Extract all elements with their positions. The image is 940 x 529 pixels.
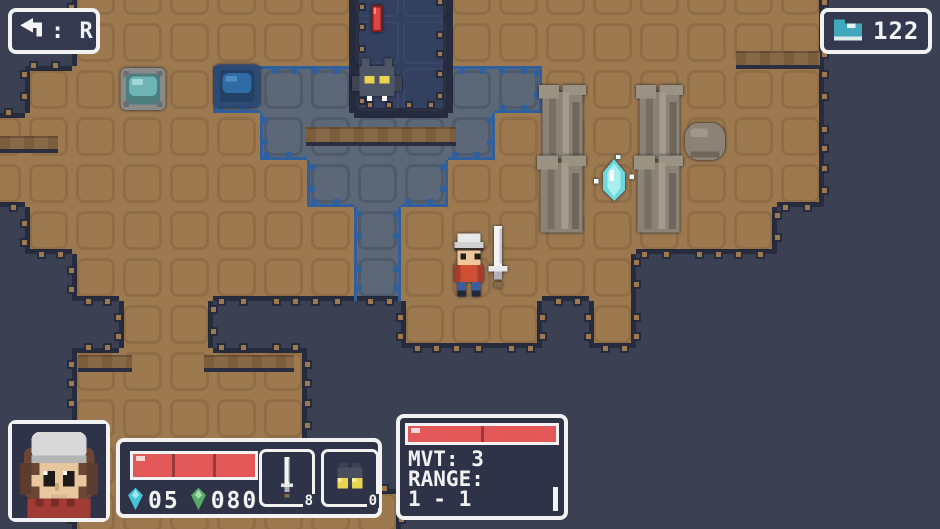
tile-floor[interactable]: [589, 254, 636, 301]
map-edge-tooth: [103, 297, 112, 306]
map-edge-tooth: [573, 297, 582, 306]
tile-floor[interactable]: [166, 301, 213, 348]
map-edge-tooth: [554, 297, 563, 306]
tile-floor[interactable]: [119, 160, 166, 207]
map-edge-tooth: [67, 360, 76, 369]
tile-floor[interactable]: [119, 301, 166, 348]
tile-floor[interactable]: [72, 66, 119, 113]
map-edge-tooth: [632, 258, 641, 267]
gem-green-icon: [191, 488, 206, 514]
tile-floor[interactable]: [260, 19, 307, 66]
range-edge-dot: [534, 70, 540, 76]
range-edge-dot: [393, 266, 399, 272]
slot-binoculars-badge: 0: [367, 494, 379, 508]
map-edge-tooth: [67, 285, 76, 294]
range-edge-dot: [405, 199, 411, 205]
undo-hint-box[interactable]: : R: [8, 8, 100, 54]
map-edge-tooth: [20, 238, 29, 247]
map-edge-tooth: [303, 399, 312, 408]
map-edge-tooth: [291, 343, 300, 352]
tile-floor[interactable]: [448, 19, 495, 66]
map-edge-tooth: [103, 343, 112, 352]
range-edge-dot: [521, 68, 527, 74]
tile-floor[interactable]: [213, 113, 260, 160]
map-edge-tooth: [756, 250, 765, 259]
tile-floor[interactable]: [401, 207, 448, 254]
tile-enemy-range[interactable]: [354, 254, 401, 301]
tile-floor[interactable]: [589, 0, 636, 19]
map-edge-tooth: [291, 297, 300, 306]
tile-floor[interactable]: [72, 113, 119, 160]
map-edge-tooth: [20, 70, 29, 79]
tile-floor[interactable]: [730, 160, 777, 207]
range-edge-dot: [393, 233, 399, 239]
game-stage: : R 122: [0, 0, 940, 529]
slot-sword-badge: 8: [303, 494, 315, 508]
map-edge-tooth: [820, 92, 829, 101]
range-edge-dot: [460, 68, 466, 74]
tile-floor[interactable]: [542, 254, 589, 301]
range-edge-dot: [440, 186, 446, 192]
range-edge-dot: [333, 68, 339, 74]
range-edge-dot: [356, 285, 362, 291]
pit-edge-tooth: [427, 101, 435, 109]
map-edge-tooth: [84, 297, 93, 306]
range-edge-dot: [499, 68, 505, 74]
tile-floor[interactable]: [777, 160, 824, 207]
map-edge-tooth: [29, 61, 38, 70]
boulder-sprite: [682, 115, 728, 165]
tile-floor[interactable]: [401, 301, 448, 348]
tile-enemy-range[interactable]: [354, 160, 401, 207]
map-edge-tooth: [640, 250, 649, 259]
tile-floor[interactable]: [636, 19, 683, 66]
tile-floor[interactable]: [166, 254, 213, 301]
tile-floor[interactable]: [119, 207, 166, 254]
tile-floor[interactable]: [730, 0, 777, 19]
tile-floor[interactable]: [307, 254, 354, 301]
map-edge-tooth: [507, 344, 516, 353]
map-edge-tooth: [432, 344, 441, 353]
pillar-sprite: [634, 154, 683, 234]
tile-floor[interactable]: [119, 113, 166, 160]
tile-floor[interactable]: [495, 301, 542, 348]
hp-segment: [484, 426, 557, 442]
map-edge-tooth: [333, 297, 342, 306]
pit-edge-tooth: [436, 31, 444, 39]
map-edge-tooth: [773, 211, 782, 220]
range-edge-dot: [521, 105, 527, 111]
cliff-ledge: [306, 127, 456, 146]
tile-floor[interactable]: [25, 160, 72, 207]
map-edge-tooth: [820, 144, 829, 153]
map-edge-tooth: [526, 344, 535, 353]
tile-floor[interactable]: [166, 207, 213, 254]
pit-edge-tooth: [358, 45, 366, 53]
steps-counter-box: 122: [820, 8, 932, 54]
map-edge-tooth: [67, 266, 76, 275]
tile-floor[interactable]: [166, 160, 213, 207]
tile-floor[interactable]: [119, 395, 166, 442]
range-edge-dot: [427, 199, 433, 205]
tile-floor[interactable]: [589, 301, 636, 348]
hp-bar-shine: [136, 456, 145, 461]
tile-enemy-range[interactable]: [448, 66, 495, 113]
enemy-range-label: RANGE:: [408, 469, 484, 489]
tile-floor[interactable]: [730, 113, 777, 160]
enemy-hp-bar: [405, 423, 559, 445]
tile-floor[interactable]: [307, 19, 354, 66]
range-edge-dot: [309, 186, 315, 192]
tile-floor[interactable]: [448, 160, 495, 207]
hero-portrait: [12, 424, 106, 518]
map-edge-tooth: [820, 164, 829, 173]
tile-floor[interactable]: [119, 254, 166, 301]
range-edge-dot: [479, 68, 485, 74]
range-edge-dot: [291, 68, 297, 74]
pit-edge-tooth: [405, 101, 413, 109]
tile-floor[interactable]: [213, 395, 260, 442]
range-edge-dot: [311, 68, 317, 74]
tile-floor[interactable]: [683, 19, 730, 66]
map-edge-tooth: [632, 313, 641, 322]
tile-floor[interactable]: [119, 19, 166, 66]
pit-edge-tooth: [436, 0, 444, 6]
enemy-range-value: 1 - 1: [408, 489, 484, 509]
tile-floor[interactable]: [25, 207, 72, 254]
tile-floor[interactable]: [72, 254, 119, 301]
map-edge-tooth: [695, 250, 704, 259]
tile-floor[interactable]: [119, 0, 166, 19]
tile-floor[interactable]: [213, 0, 260, 19]
map-edge-tooth: [474, 344, 483, 353]
tile-floor[interactable]: [495, 19, 542, 66]
tile-floor[interactable]: [542, 0, 589, 19]
range-edge-dot: [499, 105, 505, 111]
pillar-sprite: [537, 154, 586, 234]
tile-floor[interactable]: [495, 0, 542, 19]
map-edge-tooth: [820, 0, 829, 7]
map-edge-tooth: [217, 297, 226, 306]
range-edge-dot: [393, 211, 399, 217]
tile-floor[interactable]: [495, 160, 542, 207]
map-edge-tooth: [632, 280, 641, 289]
tile-floor[interactable]: [166, 19, 213, 66]
tile-floor[interactable]: [683, 207, 730, 254]
tile-floor[interactable]: [72, 160, 119, 207]
range-edge-dot: [356, 233, 362, 239]
map-edge-tooth: [396, 332, 405, 341]
map-edge-tooth: [239, 297, 248, 306]
gem-cyan-count: 05: [148, 488, 180, 514]
tile-floor[interactable]: [589, 19, 636, 66]
tile-floor[interactable]: [213, 207, 260, 254]
tile-floor[interactable]: [683, 0, 730, 19]
map-edge-tooth: [303, 379, 312, 388]
range-edge-dot: [262, 117, 268, 123]
pit-edge-tooth: [358, 23, 366, 31]
map-edge-tooth: [209, 305, 218, 314]
undo-arrow-icon: [20, 18, 46, 44]
tile-floor[interactable]: [542, 19, 589, 66]
map-edge-tooth: [217, 343, 226, 352]
tile-floor[interactable]: [401, 254, 448, 301]
range-edge-dot: [487, 117, 493, 123]
tile-floor[interactable]: [730, 66, 777, 113]
map-edge-tooth: [67, 379, 76, 388]
map-edge-tooth: [9, 203, 18, 212]
crystal-sprite[interactable]: [592, 152, 636, 206]
tile-floor[interactable]: [260, 160, 307, 207]
inventory-slot-sword[interactable]: 8: [259, 449, 315, 507]
tile-floor[interactable]: [260, 254, 307, 301]
steps-counter-value: 122: [873, 17, 919, 45]
currency-row: 05 080: [128, 488, 258, 514]
tile-floor[interactable]: [213, 254, 260, 301]
map-edge-tooth: [272, 297, 281, 306]
map-edge-tooth: [413, 344, 422, 353]
map-edge-tooth: [584, 313, 593, 322]
tile-floor[interactable]: [0, 160, 25, 207]
range-edge-dot: [272, 68, 278, 74]
map-edge-tooth: [20, 219, 29, 228]
tile-floor[interactable]: [260, 207, 307, 254]
map-edge-tooth: [4, 108, 13, 117]
range-edge-dot: [487, 139, 493, 145]
bat-enemy-sprite[interactable]: [352, 58, 402, 104]
tile-floor[interactable]: [730, 207, 777, 254]
enemy-mvt-label: MVT: 3: [408, 449, 484, 469]
gem-green-count: 080: [211, 488, 259, 514]
tile-floor[interactable]: [589, 66, 636, 113]
map-edge-tooth: [303, 360, 312, 369]
tile-floor[interactable]: [213, 19, 260, 66]
pit-edge-tooth: [436, 50, 444, 58]
map-edge-tooth: [37, 250, 46, 259]
range-edge-dot: [333, 199, 339, 205]
tile-floor[interactable]: [777, 0, 824, 19]
map-edge-tooth: [632, 332, 641, 341]
pool-blue-sprite[interactable]: [214, 64, 260, 108]
hp-segment: [408, 426, 484, 442]
map-edge-tooth: [820, 186, 829, 195]
range-edge-dot: [262, 139, 268, 145]
map-edge-tooth: [303, 421, 312, 430]
boot-icon: [832, 17, 866, 45]
map-edge-tooth: [51, 61, 60, 70]
pillar-sprite: [539, 84, 586, 160]
map-edge-tooth: [662, 250, 671, 259]
map-edge-tooth: [734, 250, 743, 259]
tile-floor[interactable]: [166, 0, 213, 19]
range-edge-dot: [452, 152, 458, 158]
map-edge-tooth: [311, 297, 320, 306]
enemy-stats-lines: MVT: 3 RANGE: 1 - 1: [408, 449, 484, 509]
range-edge-dot: [393, 285, 399, 291]
party-stats-panel: 05 080 8: [116, 438, 382, 518]
hp-segment: [216, 454, 255, 477]
map-edge-tooth: [385, 297, 394, 306]
map-edge-tooth: [538, 313, 547, 322]
hp-segment: [175, 454, 217, 477]
hp-bar-shine: [411, 428, 420, 433]
tile-floor[interactable]: [448, 301, 495, 348]
cliff-ledge: [204, 355, 294, 372]
pit-edge-tooth: [436, 92, 444, 100]
map-edge-tooth: [773, 233, 782, 242]
cliff-ledge: [78, 355, 132, 372]
tile-floor[interactable]: [636, 0, 683, 19]
map-edge-tooth: [601, 344, 610, 353]
map-edge-tooth: [396, 313, 405, 322]
enemy-info-panel: MVT: 3 RANGE: 1 - 1: [396, 414, 568, 520]
map-edge-tooth: [209, 327, 218, 336]
tile-floor[interactable]: [307, 207, 354, 254]
map-edge-tooth: [820, 125, 829, 134]
map-edge-tooth: [803, 203, 812, 212]
range-edge-dot: [286, 152, 292, 158]
red-marker-sprite: [371, 5, 383, 32]
tile-floor[interactable]: [307, 0, 354, 19]
tile-floor[interactable]: [495, 113, 542, 160]
tile-floor[interactable]: [72, 207, 119, 254]
player-hero-sprite[interactable]: [449, 233, 489, 297]
player-hp-bar: [130, 451, 258, 480]
gem-cyan-icon: [128, 488, 143, 514]
undo-hint-label: : R: [51, 19, 94, 44]
range-edge-dot: [264, 152, 270, 158]
map-edge-tooth: [584, 332, 593, 341]
hp-segment: [133, 454, 175, 477]
map-edge-tooth: [272, 343, 281, 352]
cursor-tick: [553, 487, 558, 511]
cliff-ledge: [736, 51, 820, 69]
range-edge-dot: [311, 199, 317, 205]
tile-floor[interactable]: [777, 66, 824, 113]
map-edge-tooth: [538, 332, 547, 341]
tile-floor[interactable]: [260, 0, 307, 19]
sword-ground-sprite[interactable]: [486, 226, 510, 290]
map-edge-tooth: [366, 297, 375, 306]
map-edge-tooth: [452, 344, 461, 353]
range-edge-dot: [356, 211, 362, 217]
map-edge-tooth: [84, 343, 93, 352]
map-edge-tooth: [620, 344, 629, 353]
range-edge-dot: [440, 164, 446, 170]
pit-edge-tooth: [358, 3, 366, 11]
range-edge-dot: [309, 164, 315, 170]
range-edge-dot: [356, 266, 362, 272]
range-edge-dot: [474, 152, 480, 158]
map-edge-tooth: [820, 70, 829, 79]
map-edge-tooth: [20, 92, 29, 101]
map-edge-tooth: [781, 203, 790, 212]
inventory-slot-binoculars[interactable]: 0: [321, 449, 379, 507]
hero-portrait-box: [8, 420, 110, 522]
map-edge-tooth: [67, 399, 76, 408]
tile-floor[interactable]: [448, 0, 495, 19]
map-edge-tooth: [114, 332, 123, 341]
tile-floor[interactable]: [166, 395, 213, 442]
pool-gray-sprite[interactable]: [120, 68, 166, 110]
cliff-ledge: [0, 136, 58, 153]
map-edge-tooth: [714, 250, 723, 259]
tile-floor[interactable]: [25, 66, 72, 113]
tile-floor[interactable]: [589, 207, 636, 254]
pit-edge-tooth: [436, 70, 444, 78]
map-edge-tooth: [239, 343, 248, 352]
tile-floor[interactable]: [166, 66, 213, 113]
tile-floor[interactable]: [260, 395, 307, 442]
tile-floor[interactable]: [683, 66, 730, 113]
tile-floor[interactable]: [777, 113, 824, 160]
tile-pit: [401, 19, 448, 66]
map-edge-tooth: [114, 313, 123, 322]
map-edge-tooth: [56, 250, 65, 259]
tile-floor[interactable]: [213, 160, 260, 207]
tile-floor[interactable]: [166, 113, 213, 160]
pillar-sprite: [636, 84, 683, 160]
tile-enemy-range[interactable]: [260, 66, 307, 113]
tile-floor[interactable]: [683, 160, 730, 207]
